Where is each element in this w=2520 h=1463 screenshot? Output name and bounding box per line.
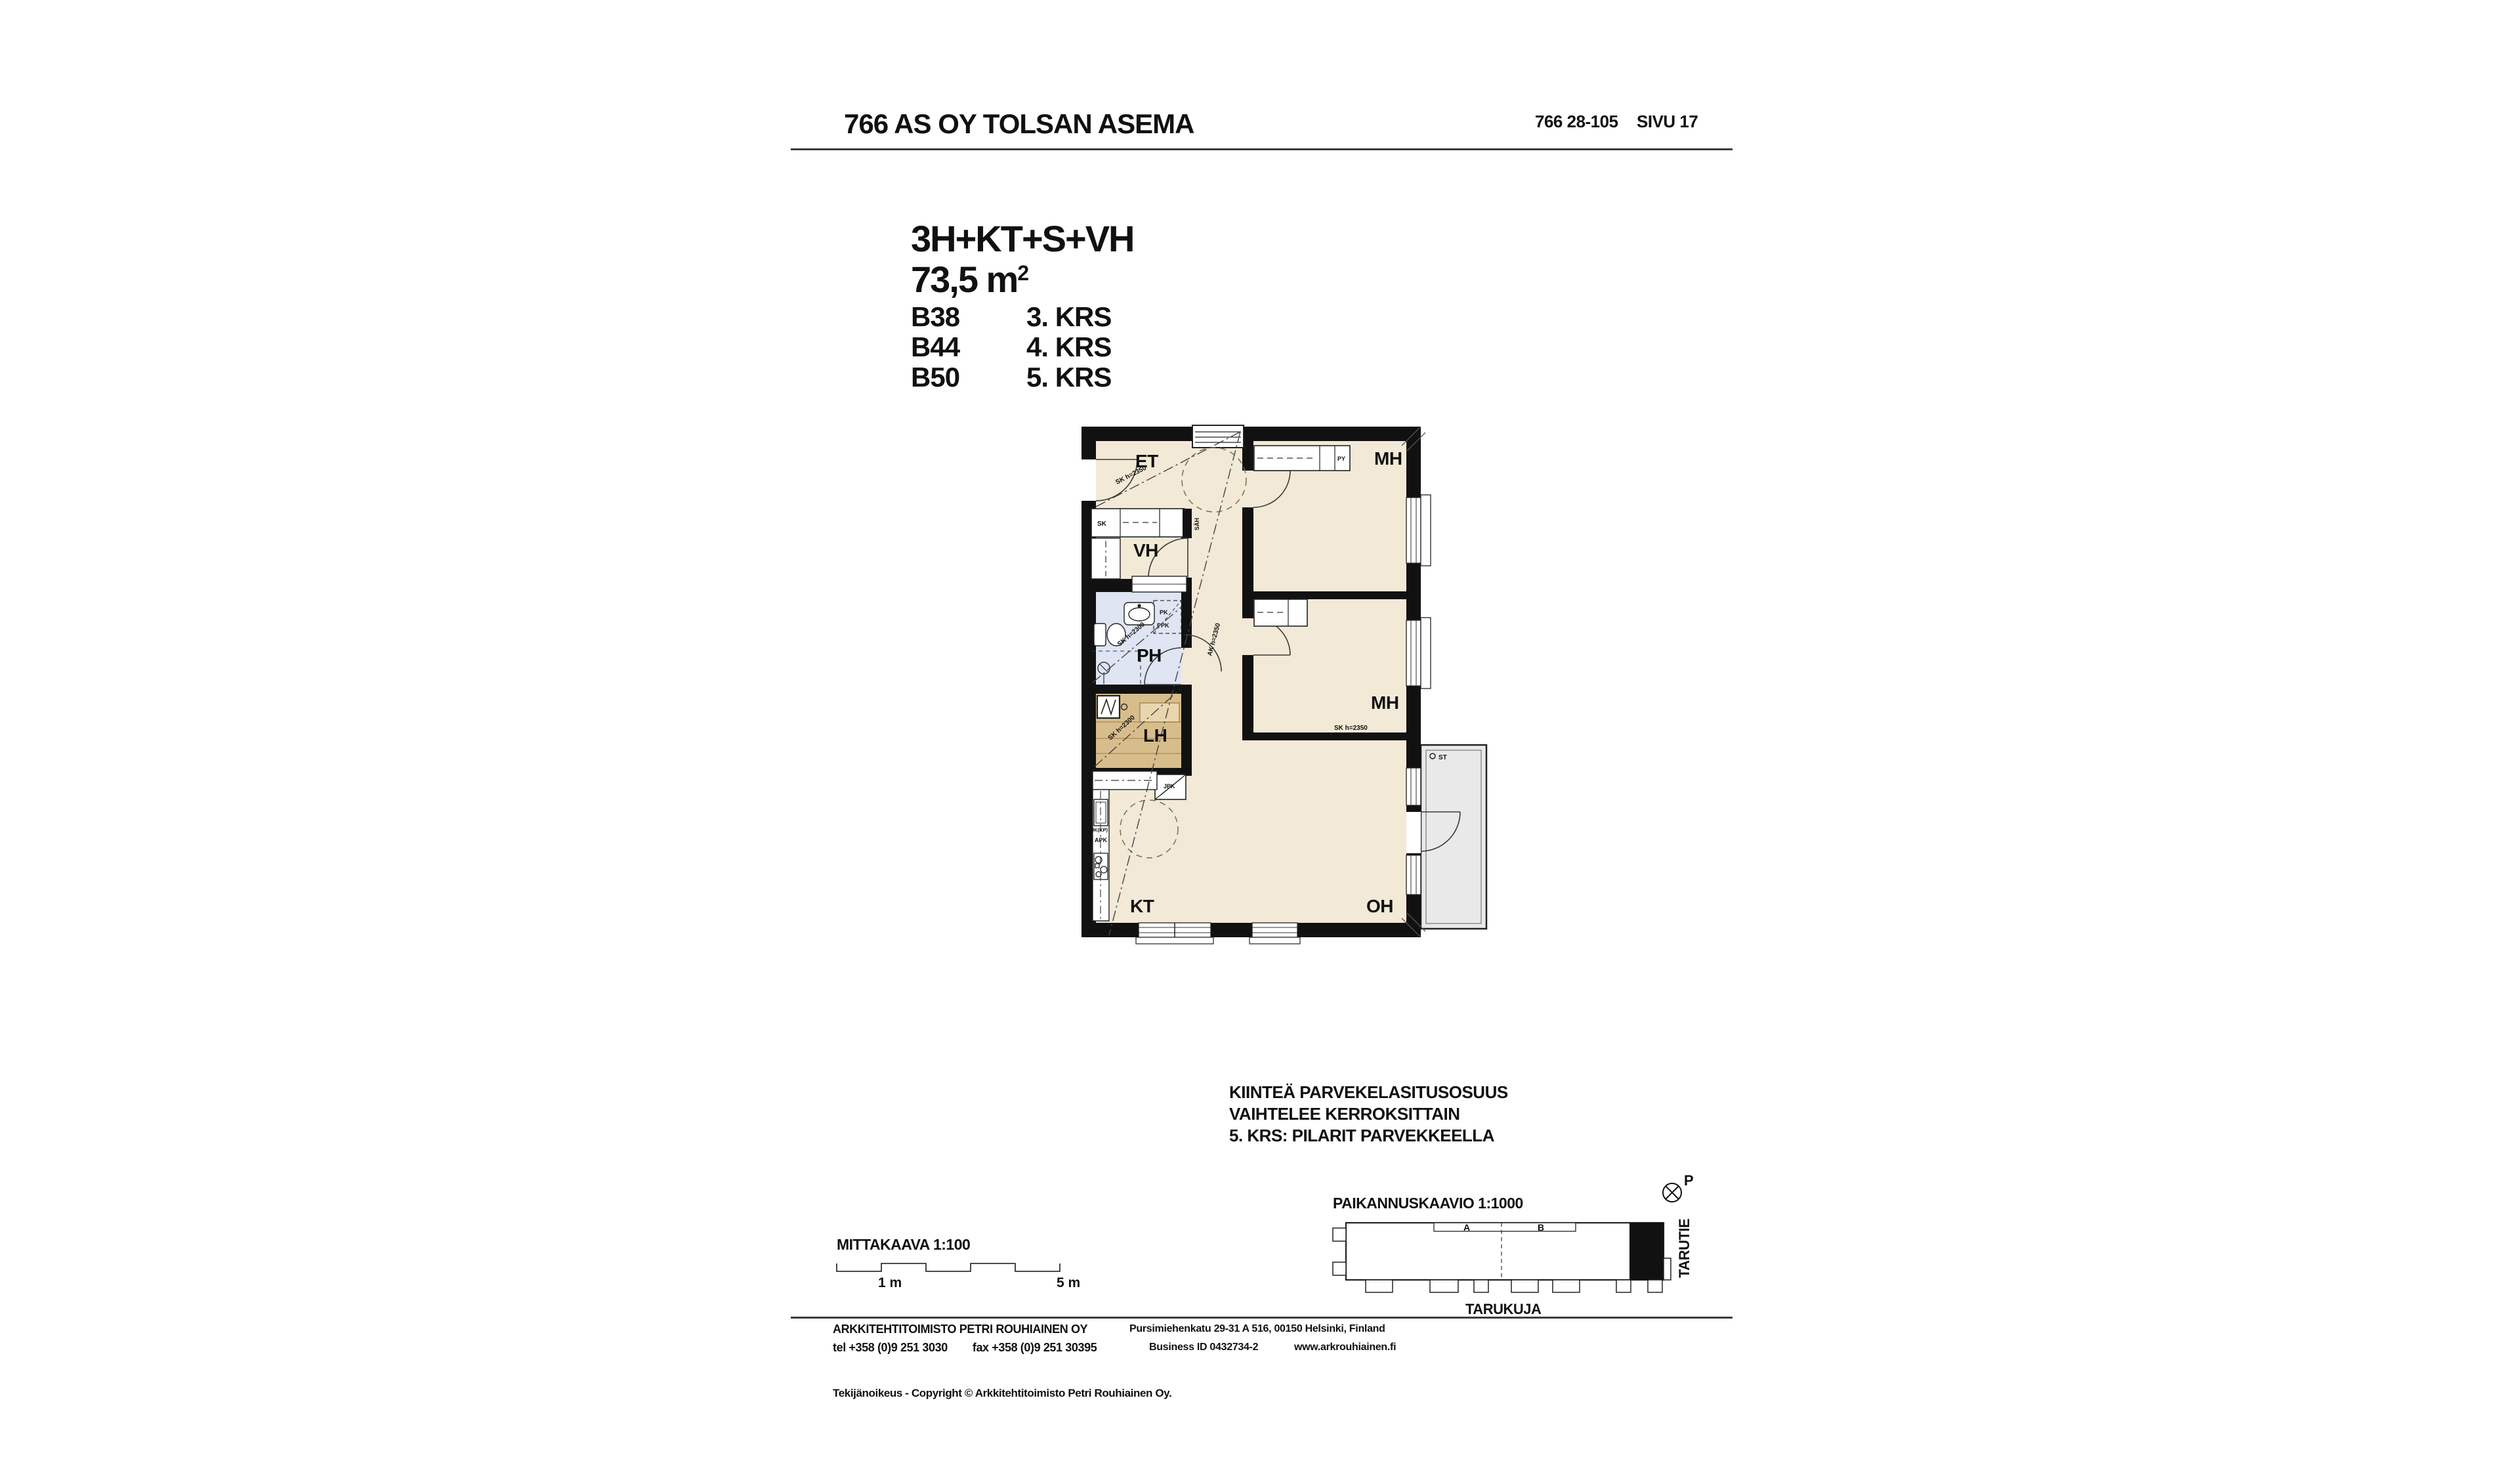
balcony: ST bbox=[1421, 745, 1486, 929]
height-note: SK h=2350 bbox=[1334, 725, 1368, 732]
balcony-st-label: ST bbox=[1438, 754, 1447, 761]
jpk-label: JPK bbox=[1164, 783, 1175, 790]
room-label-lh: LH bbox=[1143, 725, 1167, 746]
room-label-et: ET bbox=[1135, 451, 1158, 471]
company-name: ARKKITEHTITOIMISTO PETRI ROUHIAINEN OY bbox=[833, 1323, 1087, 1335]
scale-end-label: 5 m bbox=[1057, 1276, 1080, 1290]
note-line: 5. KRS: PILARIT PARVEKKEELLA bbox=[1229, 1125, 1508, 1147]
window bbox=[1406, 495, 1431, 566]
room-label-oh: OH bbox=[1366, 896, 1393, 916]
footer-divider bbox=[791, 1317, 1732, 1319]
telephone: tel +358 (0)9 251 3030 bbox=[833, 1342, 948, 1353]
room-label-mh1: MH bbox=[1374, 448, 1402, 469]
floor-plan-drawing: ST bbox=[0, 0, 2520, 1463]
sink bbox=[1124, 603, 1154, 625]
street-label-tarutie: TARUTIE bbox=[1677, 1219, 1692, 1278]
fax: fax +358 (0)9 251 30395 bbox=[973, 1342, 1097, 1353]
north-compass-icon bbox=[1663, 1183, 1681, 1202]
vh-closet bbox=[1091, 538, 1120, 579]
bedroom2-wardrobe bbox=[1254, 599, 1307, 626]
window bbox=[1406, 768, 1421, 805]
scale-start-label: 1 m bbox=[878, 1276, 902, 1290]
street-label-tarukuja: TARUKUJA bbox=[1465, 1302, 1541, 1317]
site-apartment-highlight bbox=[1629, 1223, 1664, 1280]
contact-line: tel +358 (0)9 251 3030 fax +358 (0)9 251… bbox=[833, 1342, 1097, 1353]
stair-b-label: B bbox=[1538, 1222, 1544, 1233]
room-label-vh: VH bbox=[1133, 540, 1158, 561]
sauna-bench bbox=[1140, 703, 1179, 722]
apk-label: APK bbox=[1095, 837, 1108, 843]
ppk-label: PPK bbox=[1157, 622, 1169, 629]
fridge-label: JK(KP) bbox=[1091, 827, 1108, 833]
balcony-glazing-note: KIINTEÄ PARVEKELASITUSOSUUS VAIHTELEE KE… bbox=[1229, 1082, 1508, 1147]
bedroom1-wardrobe: PY bbox=[1254, 446, 1350, 471]
window bbox=[1406, 855, 1421, 895]
entrance-opening bbox=[1081, 459, 1096, 501]
scale-bar bbox=[837, 1263, 1060, 1271]
room-label-kt: KT bbox=[1130, 896, 1154, 916]
drawing-sheet: { "header": { "project_title": "766 AS O… bbox=[0, 0, 2520, 1463]
room-label-ph: PH bbox=[1137, 645, 1162, 666]
stairwell-hatch bbox=[1192, 425, 1244, 448]
cleaning-closet: JPK bbox=[1155, 774, 1186, 799]
website-link: www.arkrouhiainen.fi bbox=[1294, 1342, 1396, 1353]
window bbox=[1136, 923, 1213, 944]
stair-a-label: A bbox=[1463, 1222, 1470, 1233]
entry-wardrobe: SK bbox=[1091, 509, 1185, 537]
balcony-door-opening bbox=[1406, 812, 1421, 853]
copyright-line: Tekijänoikeus - Copyright © Arkkitehtito… bbox=[833, 1388, 1171, 1399]
shelf-niche bbox=[1132, 576, 1186, 592]
note-line: KIINTEÄ PARVEKELASITUSOSUUS bbox=[1229, 1082, 1508, 1103]
north-label: P bbox=[1684, 1174, 1693, 1188]
site-stair-strip bbox=[1434, 1223, 1576, 1231]
window bbox=[1406, 618, 1431, 689]
scale-title: MITTAKAAVA 1:100 bbox=[837, 1237, 970, 1252]
window bbox=[1249, 923, 1300, 944]
sah-label: SÄH bbox=[1194, 518, 1200, 530]
pk-label: PK bbox=[1160, 609, 1168, 616]
business-id: Business ID 0432734-2 bbox=[1149, 1342, 1258, 1353]
py-label: PY bbox=[1337, 456, 1345, 462]
site-diagram-title: PAIKANNUSKAAVIO 1:1000 bbox=[1333, 1196, 1523, 1211]
company-address: Pursimiehenkatu 29-31 A 516, 00150 Helsi… bbox=[1129, 1324, 1385, 1334]
room-label-mh2: MH bbox=[1371, 692, 1399, 713]
note-line: VAIHTELEE KERROKSITTAIN bbox=[1229, 1103, 1508, 1125]
sk-label: SK bbox=[1097, 520, 1107, 528]
